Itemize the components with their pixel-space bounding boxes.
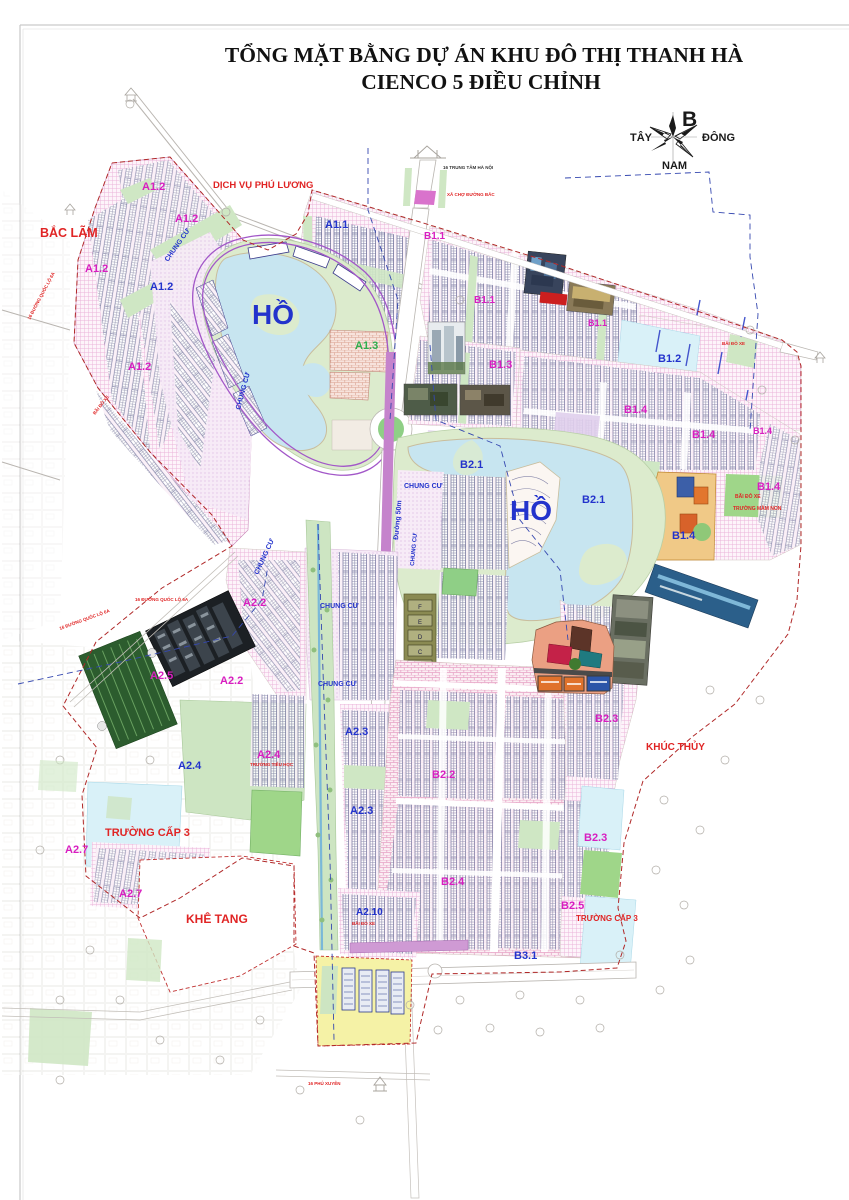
svg-text:B2.3: B2.3 (595, 713, 618, 725)
svg-text:B1.3: B1.3 (489, 359, 512, 371)
svg-text:A2.4: A2.4 (257, 749, 281, 761)
svg-text:B1.4: B1.4 (672, 530, 696, 542)
svg-text:A1.2: A1.2 (142, 181, 165, 193)
svg-text:A1.2: A1.2 (175, 213, 198, 225)
svg-text:B1.4: B1.4 (753, 426, 772, 436)
svg-text:HỒ: HỒ (252, 299, 294, 330)
svg-text:BẮC LÃM: BẮC LÃM (40, 225, 98, 240)
svg-text:TÂY: TÂY (630, 131, 653, 144)
svg-text:F: F (418, 605, 422, 611)
svg-text:A2.7: A2.7 (119, 888, 142, 900)
svg-text:B1.2: B1.2 (658, 353, 681, 365)
svg-text:A2.7: A2.7 (65, 844, 88, 856)
svg-text:A1.2: A1.2 (128, 361, 151, 373)
svg-text:B1.4: B1.4 (692, 429, 716, 441)
svg-text:B2.2: B2.2 (432, 769, 455, 781)
svg-text:A2.5: A2.5 (150, 670, 173, 682)
svg-text:CIENCO 5 ĐIỀU CHỈNH: CIENCO 5 ĐIỀU CHỈNH (361, 70, 601, 94)
svg-text:A2.2: A2.2 (243, 597, 266, 609)
svg-text:16 ĐƯỜNG QUỐC LỘ 6A: 16 ĐƯỜNG QUỐC LỘ 6A (135, 595, 189, 602)
svg-text:A1.2: A1.2 (150, 281, 173, 293)
svg-text:TỔNG MẶT BẰNG DỰ ÁN KHU ĐÔ THỊ: TỔNG MẶT BẰNG DỰ ÁN KHU ĐÔ THỊ THANH HÀ (225, 43, 744, 67)
svg-text:B1.1: B1.1 (424, 231, 446, 242)
svg-text:A2.3: A2.3 (345, 726, 368, 738)
svg-text:HỒ: HỒ (510, 495, 552, 526)
svg-text:TRƯỜNG MẦM NON: TRƯỜNG MẦM NON (733, 504, 782, 512)
svg-text:B2.1: B2.1 (582, 494, 605, 506)
svg-text:A1.3: A1.3 (355, 340, 378, 352)
svg-text:DỊCH VỤ PHÚ LƯƠNG: DỊCH VỤ PHÚ LƯƠNG (213, 179, 313, 191)
svg-text:16 TRUNG TÂM HÀ NỘI: 16 TRUNG TÂM HÀ NỘI (443, 163, 493, 170)
svg-text:16 PHÚ XUYÊN: 16 PHÚ XUYÊN (308, 1079, 341, 1086)
svg-text:B1.4: B1.4 (757, 481, 781, 493)
svg-text:NAM: NAM (662, 160, 687, 172)
svg-text:A2.10: A2.10 (356, 907, 383, 918)
svg-text:A2.2: A2.2 (220, 675, 243, 687)
svg-text:ĐÔNG: ĐÔNG (702, 131, 735, 144)
svg-text:D: D (418, 635, 423, 641)
svg-text:A2.3: A2.3 (350, 805, 373, 817)
svg-text:E: E (418, 620, 422, 626)
svg-text:XÃ CHỢ ĐƯỜNG BẮC: XÃ CHỢ ĐƯỜNG BẮC (447, 190, 495, 197)
svg-text:TRƯỜNG TIỂU HỌC: TRƯỜNG TIỂU HỌC (250, 760, 294, 767)
svg-text:B: B (682, 108, 697, 131)
svg-text:BÃI ĐỖ XE: BÃI ĐỖ XE (735, 493, 761, 500)
svg-text:C: C (418, 650, 423, 656)
svg-text:B1.1: B1.1 (588, 318, 607, 328)
svg-text:A1.2: A1.2 (85, 263, 108, 275)
svg-text:B2.4: B2.4 (441, 876, 465, 888)
svg-text:B2.3: B2.3 (584, 832, 607, 844)
svg-text:TRƯỜNG CẤP 3: TRƯỜNG CẤP 3 (105, 826, 190, 839)
svg-text:CHUNG CƯ: CHUNG CƯ (318, 681, 357, 688)
svg-text:CHUNG CƯ: CHUNG CƯ (404, 483, 443, 490)
svg-text:B1.1: B1.1 (474, 295, 496, 306)
svg-text:BÃI ĐỖ XE: BÃI ĐỖ XE (722, 340, 745, 346)
svg-text:CHUNG CƯ: CHUNG CƯ (320, 603, 359, 610)
svg-text:BÃI ĐỖ XE: BÃI ĐỖ XE (352, 920, 375, 926)
svg-text:A2.4: A2.4 (178, 760, 202, 772)
svg-text:A1.1: A1.1 (325, 219, 348, 231)
svg-text:B2.1: B2.1 (460, 459, 483, 471)
svg-text:B2.5: B2.5 (561, 900, 584, 912)
svg-text:KHÚC THỦY: KHÚC THỦY (646, 740, 705, 753)
svg-text:TRƯỜNG CẤP 3: TRƯỜNG CẤP 3 (576, 913, 638, 923)
svg-text:KHÊ TANG: KHÊ TANG (186, 911, 248, 926)
svg-text:B1.4: B1.4 (624, 404, 648, 416)
svg-text:B3.1: B3.1 (514, 950, 537, 962)
